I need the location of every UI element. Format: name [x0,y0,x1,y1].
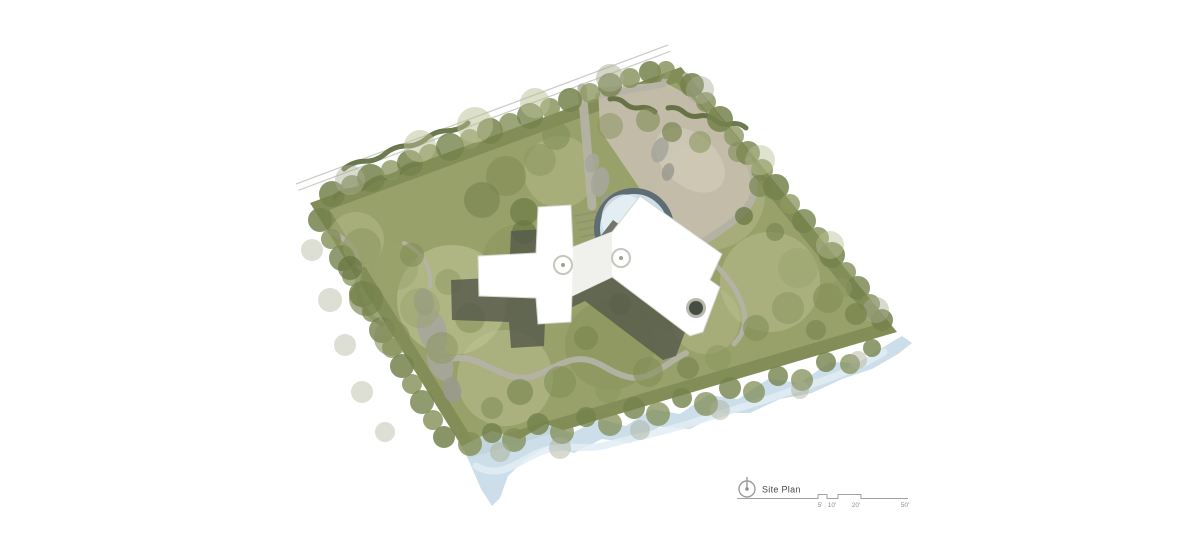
tree [338,256,362,280]
chimney [689,301,703,315]
tree [630,420,650,440]
tree [595,377,621,403]
tree [426,332,458,364]
tree [633,357,663,387]
tree [436,133,464,161]
scale-label-20: 20' [852,502,860,509]
tree [349,282,383,316]
tree [596,64,624,92]
tree [863,339,881,357]
tree [863,297,889,323]
tree [544,366,576,398]
scale-label-10: 10' [828,502,836,509]
scale-label-5: 5' [818,502,823,509]
skylight-dot [561,263,565,267]
tree [464,182,500,218]
tree [374,320,410,356]
scale-bar-line [737,495,908,499]
legend: Site Plan 5' 10' 20' 50' [737,477,909,509]
tree [598,412,622,436]
tree [580,83,600,103]
tree [686,76,714,104]
scale-label-50: 50' [901,502,909,509]
tree [542,122,570,150]
tree [735,207,753,225]
tree [816,352,836,372]
tree [768,366,788,386]
north-arrow-dot [745,487,749,491]
tree [791,381,809,399]
tree [772,292,804,324]
tree [749,175,771,197]
tree [549,437,571,459]
tree [574,326,598,350]
tree [689,131,711,153]
tree [527,413,549,435]
drawing-title: Site Plan [762,485,801,495]
tree [481,397,503,419]
north-arrow-icon [739,477,755,497]
site-plan-svg: Site Plan 5' 10' 20' 50' [0,0,1200,554]
tree [662,122,682,142]
tree [743,315,769,341]
tree [677,357,699,379]
tree [623,397,645,419]
tree [832,278,852,298]
tree [400,243,424,267]
tree [520,88,550,118]
site-plan-canvas: Site Plan 5' 10' 20' 50' [0,0,1200,554]
tree [705,345,731,371]
tree [657,61,675,79]
tree [636,108,660,132]
tree [351,381,373,403]
tree [597,113,623,139]
tree [710,400,730,420]
scale-bar: 5' 10' 20' 50' [737,495,909,510]
tree [400,288,440,328]
tree [507,379,533,405]
tree [849,351,867,369]
tree [318,288,342,312]
tree [672,388,692,408]
tree [458,432,482,456]
tree [646,402,670,426]
tree [745,145,775,175]
tree [806,320,826,340]
tree [558,88,582,112]
tree [308,208,332,232]
tree [457,107,493,143]
tree [335,165,365,195]
tree [845,303,867,325]
site-plan-drawing [296,45,912,506]
tree [404,130,436,162]
tree [375,422,395,442]
tree [719,377,741,399]
tree [778,248,818,288]
tree [576,407,596,427]
tree [482,423,502,443]
tree [780,194,800,214]
tree [433,426,455,448]
tree [490,442,510,462]
tree [728,142,748,162]
tree [766,223,784,241]
skylight-dot [619,256,623,260]
tree [334,334,356,356]
tree [816,231,844,259]
tree [301,239,323,261]
tree [743,381,765,403]
